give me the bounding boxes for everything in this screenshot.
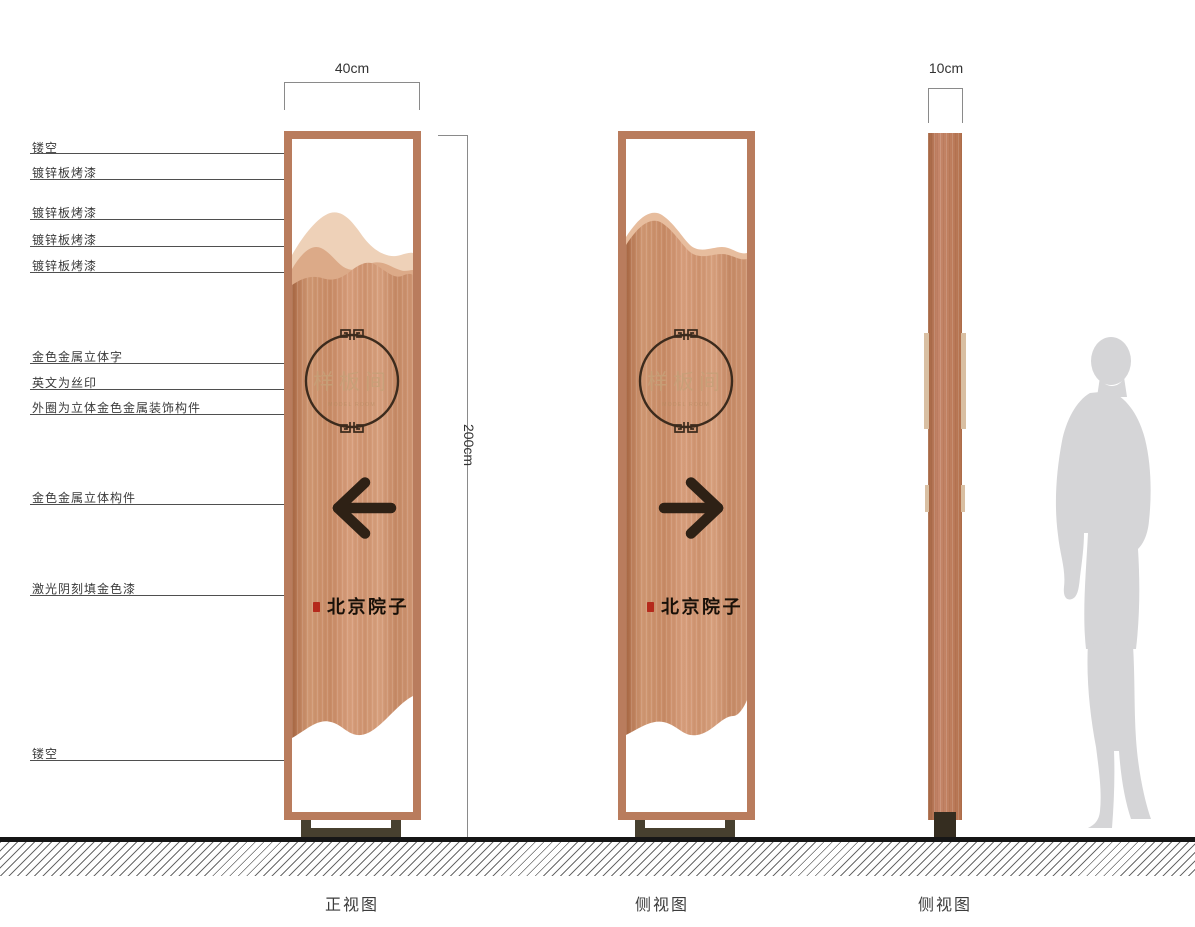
profile-emblem-tab (961, 333, 966, 429)
sign-side-artwork: 样板间 MODEL ROOM 北京院子 (626, 139, 747, 812)
dimension-tick (928, 88, 929, 123)
leader-line (30, 246, 290, 247)
dimension-tick (962, 88, 963, 123)
brand-text: 北京院子 (327, 596, 409, 617)
profile-arrow-tab (961, 485, 965, 512)
sign-base-foot (301, 820, 311, 828)
sign-profile-strip (928, 133, 962, 820)
panel-name-text: 样板间 (313, 371, 391, 394)
panel-name-subtext: MODEL ROOM (328, 402, 376, 408)
brand-text: 北京院子 (661, 596, 743, 617)
seal-icon (313, 602, 320, 612)
caption-side-view: 侧视图 (592, 891, 732, 915)
profile-arrow-tab (925, 485, 929, 512)
width-dimension-label: 40cm (322, 60, 382, 76)
seal-icon (647, 602, 654, 612)
sign-base-foot (725, 820, 735, 828)
ground-hatch (0, 842, 1195, 876)
height-dimension-label: 200cm (461, 424, 477, 466)
leader-line (30, 760, 306, 761)
dimension-bracket (284, 82, 420, 83)
dimension-tick (284, 82, 285, 110)
panel-name-subtext: MODEL ROOM (662, 402, 710, 408)
dimension-bracket (928, 88, 963, 89)
leader-line (30, 153, 307, 154)
leader-line (30, 179, 285, 180)
leader-line (30, 414, 324, 415)
dimension-tick (438, 135, 467, 136)
person-silhouette (1030, 333, 1175, 835)
depth-dimension-label: 10cm (916, 60, 976, 76)
sign-base-foot (391, 820, 401, 828)
sign-base-foot (934, 812, 956, 838)
leader-line (30, 219, 322, 220)
caption-front-view: 正视图 (282, 891, 422, 915)
profile-emblem-tab (924, 333, 929, 429)
dimension-tick (419, 82, 420, 110)
leader-line (30, 272, 293, 273)
drawing-canvas: 镂空 镀锌板烤漆 镀锌板烤漆 镀锌板烤漆 镀锌板烤漆 金色金属立体字 英文为丝印… (0, 0, 1195, 927)
panel-name-text: 样板间 (647, 371, 725, 394)
sign-front-artwork: 样板间 MODEL ROOM 北京院子 (292, 139, 413, 812)
sign-base-foot (635, 820, 645, 828)
caption-profile-view: 侧视图 (875, 891, 1015, 915)
dimension-line-vertical (467, 135, 468, 837)
